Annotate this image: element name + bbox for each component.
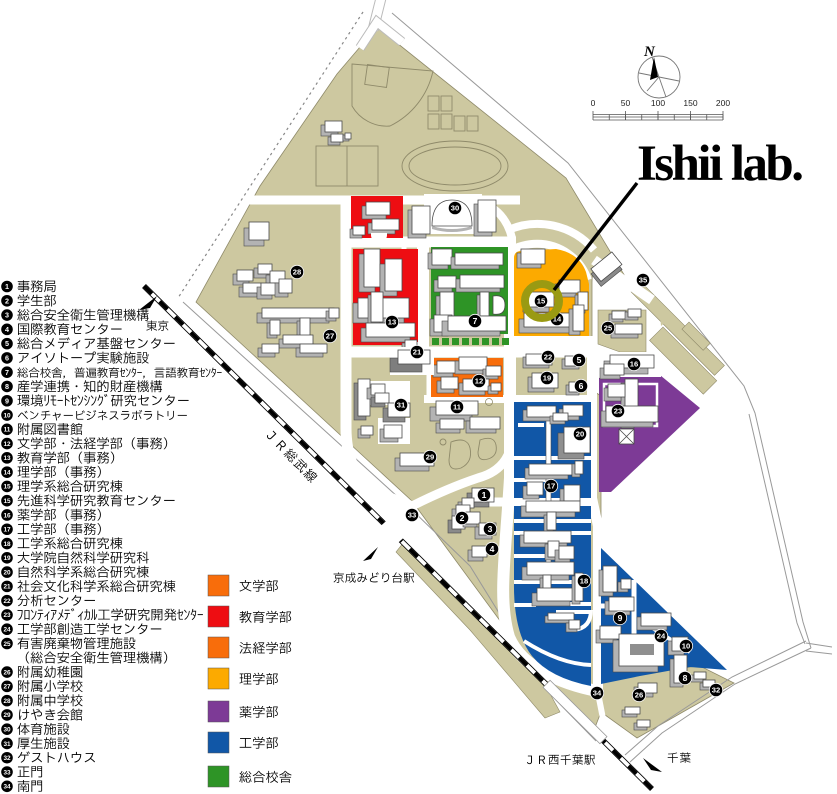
svg-text:15: 15	[537, 297, 546, 306]
svg-text:33: 33	[3, 769, 11, 776]
svg-text:21: 21	[3, 584, 11, 591]
svg-text:26: 26	[3, 669, 11, 676]
svg-text:9: 9	[5, 396, 9, 405]
svg-text:20: 20	[576, 430, 584, 439]
svg-text:22: 22	[544, 353, 552, 362]
svg-text:25: 25	[604, 324, 613, 333]
svg-text:8: 8	[683, 673, 688, 683]
svg-text:19: 19	[3, 555, 11, 562]
svg-text:16: 16	[3, 512, 11, 519]
svg-text:27: 27	[3, 684, 11, 691]
svg-text:10: 10	[3, 412, 11, 419]
svg-text:10: 10	[682, 642, 690, 651]
svg-text:19: 19	[543, 374, 551, 383]
svg-text:33: 33	[408, 511, 416, 520]
svg-text:6: 6	[5, 353, 9, 362]
svg-text:1: 1	[5, 282, 9, 291]
svg-text:2: 2	[5, 296, 9, 305]
svg-text:26: 26	[635, 691, 643, 700]
svg-text:35: 35	[639, 276, 648, 285]
svg-text:18: 18	[3, 541, 11, 548]
svg-text:23: 23	[3, 612, 11, 619]
svg-text:14: 14	[3, 469, 11, 476]
svg-text:50: 50	[621, 98, 631, 108]
svg-text:8: 8	[5, 382, 9, 391]
svg-text:23: 23	[614, 407, 622, 416]
svg-text:20: 20	[3, 569, 11, 576]
svg-text:28: 28	[3, 698, 11, 705]
svg-text:27: 27	[326, 332, 334, 341]
svg-text:17: 17	[3, 527, 11, 534]
svg-text:17: 17	[547, 482, 555, 491]
svg-text:16: 16	[630, 360, 638, 369]
svg-text:12: 12	[3, 441, 11, 448]
svg-text:21: 21	[413, 348, 422, 357]
svg-text:Ishii lab.: Ishii lab.	[637, 136, 804, 192]
svg-text:13: 13	[3, 455, 11, 462]
svg-text:13: 13	[388, 318, 396, 327]
svg-text:34: 34	[593, 689, 602, 698]
svg-text:150: 150	[683, 98, 697, 108]
svg-text:24: 24	[3, 627, 11, 634]
svg-text:29: 29	[3, 712, 11, 719]
svg-text:22: 22	[3, 598, 11, 605]
svg-text:100: 100	[651, 98, 665, 108]
svg-text:7: 7	[473, 316, 478, 326]
svg-text:200: 200	[716, 98, 730, 108]
svg-text:18: 18	[580, 577, 588, 586]
svg-text:2: 2	[460, 513, 465, 523]
svg-text:3: 3	[488, 524, 493, 534]
svg-text:29: 29	[426, 453, 434, 462]
svg-text:30: 30	[3, 726, 11, 733]
svg-text:3: 3	[5, 311, 9, 320]
svg-text:28: 28	[293, 268, 301, 277]
svg-text:4: 4	[490, 544, 495, 554]
svg-text:31: 31	[397, 401, 406, 410]
svg-text:N: N	[643, 44, 656, 60]
svg-text:11: 11	[4, 427, 11, 434]
svg-text:1: 1	[482, 490, 487, 500]
svg-text:12: 12	[475, 377, 483, 386]
svg-text:31: 31	[3, 741, 11, 748]
svg-text:9: 9	[618, 613, 623, 623]
svg-text:32: 32	[3, 755, 11, 762]
svg-text:25: 25	[3, 641, 11, 648]
svg-text:34: 34	[3, 784, 11, 791]
svg-text:5: 5	[5, 339, 9, 348]
svg-text:7: 7	[5, 368, 9, 377]
svg-text:15: 15	[3, 498, 11, 505]
svg-text:4: 4	[5, 325, 9, 334]
svg-text:30: 30	[451, 204, 459, 213]
svg-text:15: 15	[3, 484, 11, 491]
svg-text:5: 5	[577, 355, 582, 365]
svg-text:0: 0	[591, 98, 596, 108]
svg-text:24: 24	[657, 632, 666, 641]
svg-text:6: 6	[579, 381, 584, 391]
svg-text:11: 11	[453, 403, 462, 412]
svg-text:32: 32	[712, 686, 720, 695]
